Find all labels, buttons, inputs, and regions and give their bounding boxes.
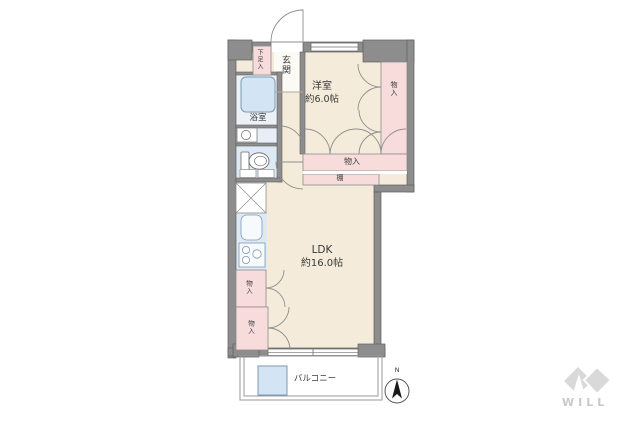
label-western-room-size: 約6.0帖 [288,94,356,106]
brand-logo-text: WILL [562,396,606,410]
stove-burner [242,246,249,253]
bathtub [241,77,275,112]
label-ldk-closet1: 物入 [245,280,252,295]
wall-bath-wash-divider [236,125,277,128]
wall-step [374,185,414,192]
wall-right-upper [407,40,414,192]
wall-corner-top-left [228,40,252,60]
label-compass-north: N [392,366,402,374]
label-closet-storage: 物入 [390,81,397,97]
label-western-room-name: 洋室 [292,81,352,94]
wall-right-lower [374,192,381,356]
kitchen-sink [241,215,262,240]
stove-burner [253,250,261,258]
floor-plan: 玄関 下足入 浴室 洋室 約6.0帖 物入 物入 棚 LDK 約16.0帖 物入… [0,0,640,427]
label-entrance: 玄関 [280,55,289,75]
wall-sanitary-right [277,72,282,182]
wall-toilet-bottom [236,178,282,182]
label-shelf: 棚 [320,174,360,183]
entrance-door-arc [271,10,303,42]
brand-logo-mark [564,367,611,396]
label-storage-band: 物入 [320,157,384,167]
wall-corner-top-right [363,40,414,62]
logo-diamond-right [584,367,611,394]
washbasin-bowl [241,130,250,139]
utility-box-1 [240,170,256,178]
label-shoe-storage: 下足入 [256,49,262,70]
label-ldk-closet2: 物入 [247,320,254,335]
label-ldk-size: 約16.0帖 [288,258,356,271]
wall-corner-bottom-right [358,344,385,357]
label-ldk-name: LDK [292,244,352,257]
stove-burner [242,256,249,263]
utility-box-2 [258,170,274,178]
label-bathroom: 浴室 [240,113,276,124]
label-balcony: バルコニー [280,374,350,385]
wall-wash-toilet-divider [236,143,277,146]
toilet-bowl-inner [255,156,267,166]
compass [385,379,409,403]
wall-left [228,40,236,358]
toilet-tank [241,152,249,170]
floor-plan-drawing [0,0,640,427]
